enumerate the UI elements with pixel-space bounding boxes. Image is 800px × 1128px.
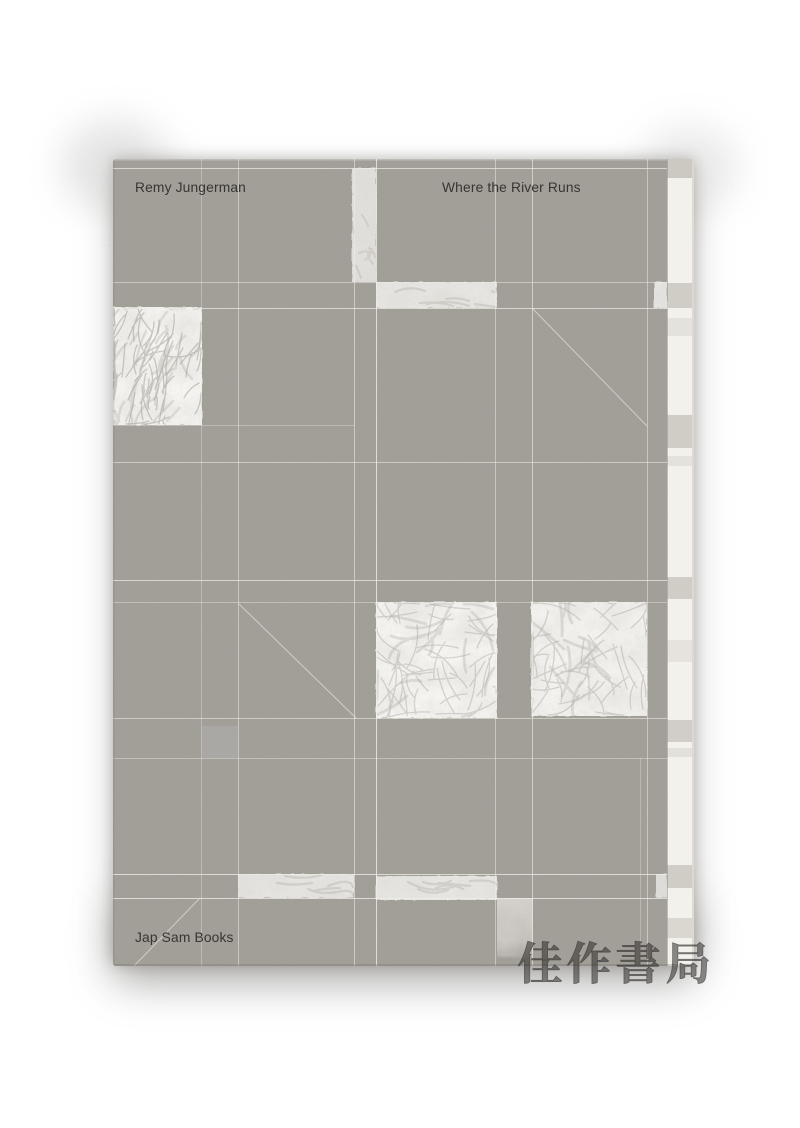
svg-text:Remy Jungerman: Remy Jungerman xyxy=(135,180,246,195)
svg-text:Where the River Runs: Where the River Runs xyxy=(442,180,581,195)
svg-text:Jap Sam Books: Jap Sam Books xyxy=(135,930,234,945)
